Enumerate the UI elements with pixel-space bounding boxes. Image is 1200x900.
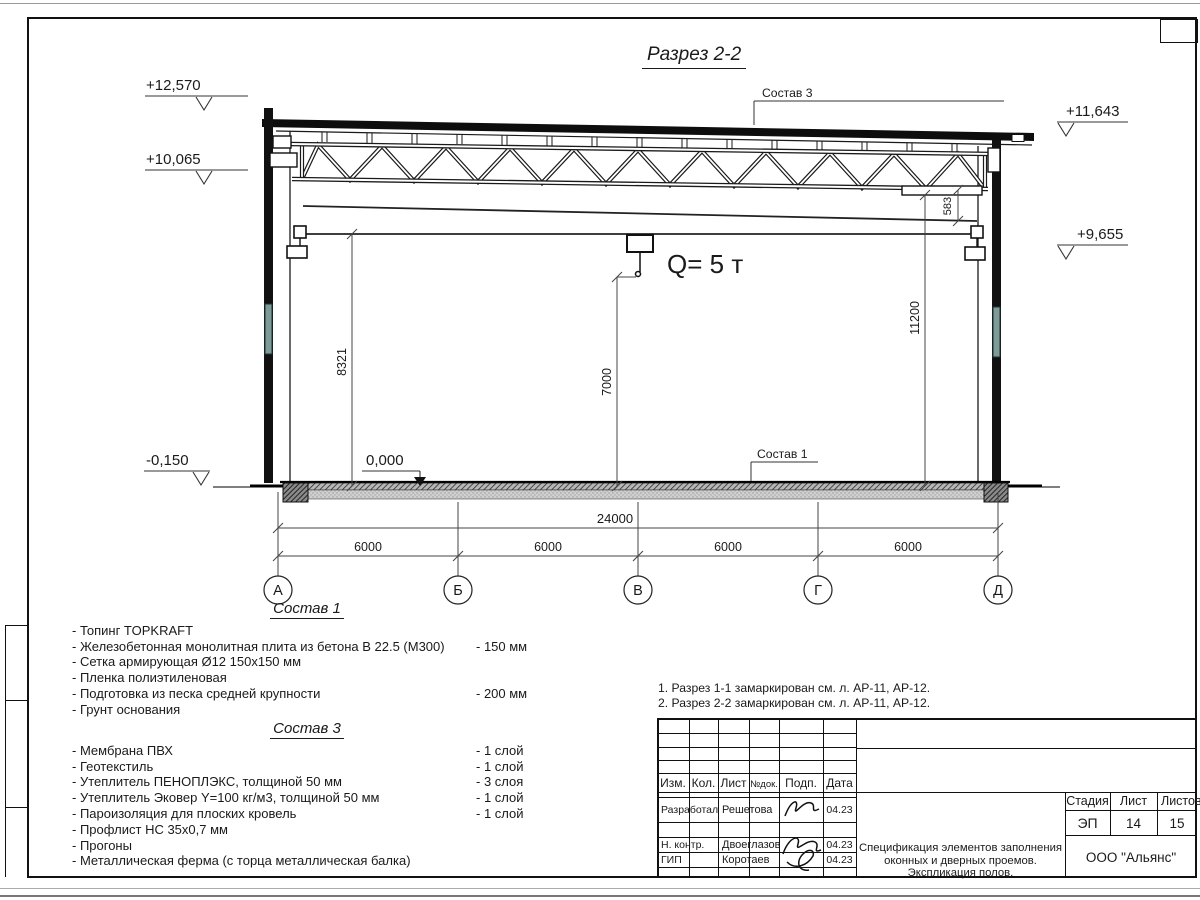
dim-crane-height: 8321 [335,348,349,376]
dim-truss-depth: 583 [942,197,954,215]
crane-console-left [287,246,307,258]
floor-composition-heading: Состав 1 [72,601,542,617]
dim-total-span: 24000 [597,511,633,526]
left-wall-panel-insert [265,304,272,354]
list-item: - Пленка полиэтиленовая [72,670,542,686]
callout-leaders [751,101,1004,481]
axis-label-a: А [273,583,283,599]
col-header-kol: Кол. [689,776,718,790]
dim-bay-4: 6000 [894,540,922,554]
list-item: - Металлическая ферма (с торца металличе… [72,853,542,869]
role-developed: Разработал [661,804,718,816]
sheet-number: 14 [1110,816,1157,831]
name-gip: Коротаев [722,854,770,866]
hoist-trolley [627,235,653,252]
axis-label-d: Д [993,583,1003,599]
floor-composition-block: Состав 1 - Топинг TOPKRAFT - Железобетон… [72,601,542,718]
right-footing [984,483,1008,502]
col-header-list: Лист [718,776,749,790]
role-ncontrol: Н. контр. [661,839,704,851]
name-developed: Решетова [722,804,772,816]
right-bearing-beam [902,186,982,195]
crane-bracket-right [971,226,983,238]
sheets-total: 15 [1157,816,1197,831]
crane-capacity-label: Q= 5 т [667,249,743,279]
role-gip: ГИП [661,854,682,866]
axis-label-b: Б [453,583,463,599]
revision-strip-divider [5,625,27,626]
stage-label: Стадия [1065,794,1110,808]
list-item: - Железобетонная монолитная плита из бет… [72,639,542,655]
sheet-label: Лист [1110,794,1157,808]
list-item: - Геотекстиль- 1 слой [72,759,542,775]
vertical-dimension-lines [347,185,963,491]
dim-clear-height: 11200 [908,301,922,335]
sheets-label: Листов [1161,794,1200,808]
company-name: ООО "Альянс" [1065,850,1197,865]
date-developed: 04.23 [823,804,856,816]
notes: 1. Разрез 1-1 замаркирован см. л. АР-11,… [658,681,930,710]
note-line: 2. Разрез 2-2 замаркирован см. л. АР-11,… [658,696,930,711]
soffit-line [303,206,977,221]
note-line: 1. Разрез 1-1 замаркирован см. л. АР-11,… [658,681,930,696]
date-gip: 04.23 [823,854,856,866]
stage-value: ЭП [1065,815,1110,831]
list-item: - Прогоны [72,838,542,854]
revision-strip-divider [5,807,27,808]
signature-developed [785,802,819,816]
callout-roof-composition: Состав 3 [762,86,813,100]
floor-base-layer [283,490,1008,499]
revision-strip-divider [5,700,27,701]
col-header-data: Дата [823,776,856,790]
elevation-truss-bottom: +10,065 [146,151,201,168]
crane-bracket-left [294,226,306,238]
signature-gip [783,838,821,870]
callout-floor-composition: Состав 1 [757,447,808,461]
date-ncontrol: 04.23 [823,839,856,851]
col-header-izm: Изм. [657,776,689,790]
section-drawing: Q= 5 т +12,570 +10,065 +11,643 +9,655 -0… [0,0,1200,620]
floor-topping-layer [283,483,1008,490]
elevation-right-low: +9,655 [1077,226,1123,243]
right-wall-panel-insert [993,307,1000,357]
elevation-floor-zero: 0,000 [366,452,404,469]
axis-label-g: Г [814,583,822,599]
list-item: - Утеплитель ПЕНОПЛЭКС, толщиной 50 мм- … [72,774,542,790]
roof-composition-block: Состав 3 - Мембрана ПВХ- 1 слой - Геотек… [72,721,542,869]
left-bearing-detail-2 [270,153,297,167]
drawing-sheet: Разрез 2-2 [0,0,1200,900]
col-header-ndoc: №док. [749,779,779,790]
left-bearing-detail [273,136,291,148]
revision-strip-edge [5,625,6,877]
page-edge-bottom-1 [0,888,1200,889]
list-item: - Грунт основания [72,702,542,718]
list-item: - Профлист НС 35х0,7 мм [72,822,542,838]
elevation-right-top: +11,643 [1066,103,1120,120]
name-ncontrol: Двоеглазов [722,839,780,851]
roof-composition-heading: Состав 3 [72,721,542,737]
document-name: Спецификация элементов заполнения оконны… [858,842,1063,880]
col-header-podp: Подп. [779,776,823,790]
dim-bay-3: 6000 [714,540,742,554]
roof-end-detail [1012,135,1024,142]
elevation-parapet: +12,570 [146,77,201,94]
hoist-hook [636,272,641,277]
elevation-ground: -0,150 [146,452,189,469]
axis-label-v: В [633,583,643,599]
dim-bay-2: 6000 [534,540,562,554]
left-footing [283,483,308,502]
dim-hook-height: 7000 [600,368,614,396]
list-item: - Топинг TOPKRAFT [72,623,542,639]
list-item: - Пароизоляция для плоских кровель- 1 сл… [72,806,542,822]
crane-console-right [965,247,985,260]
signatures [779,792,823,878]
horizontal-dimension-lines [273,492,1003,576]
list-item: - Мембрана ПВХ- 1 слой [72,743,542,759]
page-edge-bottom-2 [0,895,1200,897]
list-item: - Подготовка из песка средней крупности-… [72,686,542,702]
list-item: - Сетка армирующая Ø12 150х150 мм [72,654,542,670]
right-bearing-detail [988,148,1000,172]
dim-bay-1: 6000 [354,540,382,554]
list-item: - Утеплитель Эковер Y=100 кг/м3, толщино… [72,790,542,806]
